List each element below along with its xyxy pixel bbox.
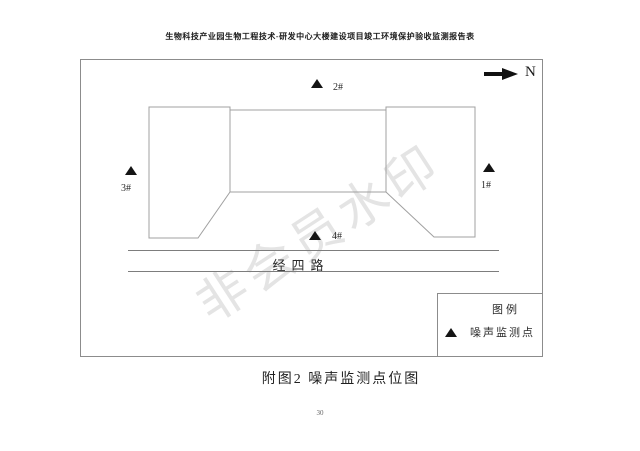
north-label: N [525,64,536,81]
road-edge-bottom [128,271,499,272]
north-indicator: N [483,64,541,84]
north-arrow-icon [483,67,519,81]
noise-monitor-triangle-icon [483,163,495,172]
monitoring-point-label: 2# [333,82,343,93]
diagram-frame: 非会员水印 N 2# 3# 1# [80,59,543,357]
noise-monitor-triangle-icon [445,328,457,337]
noise-monitor-triangle-icon [311,79,323,88]
legend-item-label: 噪声监测点 [470,324,535,340]
page-number: 30 [0,409,640,417]
road-edge-top [128,250,499,251]
document-page: 生物科技产业园生物工程技术-研发中心大楼建设项目竣工环境保护验收监测报告表 非会… [0,0,640,451]
monitoring-point-label: 1# [481,180,491,191]
monitoring-point-label: 4# [332,231,342,242]
noise-monitor-triangle-icon [125,166,137,175]
legend-box: 图例 噪声监测点 [437,293,543,357]
building-outer-outline [149,107,475,238]
figure-caption: 附图2 噪声监测点位图 [42,368,640,388]
document-header-title: 生物科技产业园生物工程技术-研发中心大楼建设项目竣工环境保护验收监测报告表 [0,31,640,42]
legend-title: 图例 [492,301,520,317]
noise-monitor-triangle-icon [309,231,321,240]
monitoring-point-label: 3# [121,183,131,194]
